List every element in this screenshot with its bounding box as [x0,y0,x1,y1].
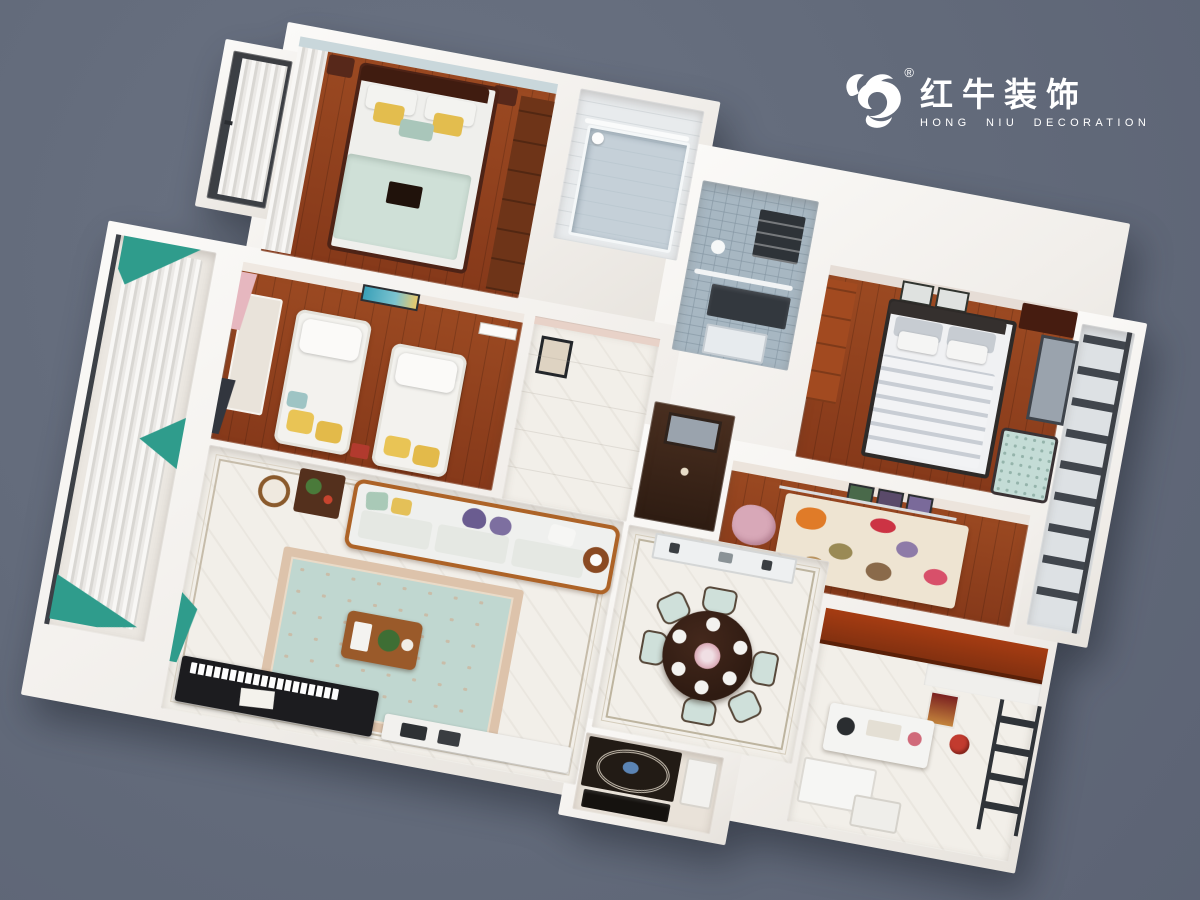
island-flowers [907,731,923,747]
foyer-bench [679,757,719,810]
room-master-bedroom [261,36,558,298]
brand-name-en: HONG NIU DECORATION [920,117,1150,129]
kids-bed-right-yellow-pillow [383,435,412,459]
side-table-cup [589,553,603,567]
piano-sheet [239,688,275,710]
study-window [663,412,722,453]
tv-device-2 [437,729,461,747]
rug-purple-shape [895,540,920,560]
kitchen-appliance-2 [849,794,902,834]
render-canvas: ® 红牛装饰 HONG NIU DECORATION [0,0,1200,900]
island-tray [866,719,902,741]
sofa-seat-1 [357,510,433,551]
bath-sink [710,239,726,255]
bedroom2-chaise-teal [990,427,1059,504]
sideboard-item-1 [669,542,681,554]
living-console-table [293,468,346,520]
sofa-pillow-purple-1 [461,506,488,530]
bedroom2-duvet-striped [866,354,996,469]
rug-pink-shape [922,567,949,587]
sideboard-item-2 [718,551,734,563]
kids-bed-left-pillow [298,318,363,362]
bull-logo-icon: ® [838,67,910,139]
rug-giraffe-shape [794,505,828,532]
bath-vanity [706,284,790,330]
brand-logo: ® 红牛装饰 HONG NIU DECORATION [838,60,1118,146]
bath-towel-bar [694,268,793,291]
kitchen-fruit-bowl [948,733,971,756]
island-kettle [835,716,856,737]
master-pillow-yellow-right [431,112,464,137]
kids-nightstand [350,443,370,460]
sofa-pillow-yellow [390,497,413,516]
dining-plate-4 [732,640,748,656]
coffee-table-plant [376,628,402,654]
bath-shelf-unit [752,209,806,265]
registered-mark: ® [904,65,914,80]
console-vase [323,494,333,504]
kids-bed-left-teal-pillow [286,390,309,409]
dining-centerpiece [692,641,722,671]
dining-plate-5 [670,661,686,677]
rug-red-shape [869,517,897,536]
master-cushion-mint [398,118,435,142]
dining-plate-6 [721,670,737,686]
coffee-table-teaset [400,638,414,652]
dining-plate-1 [705,616,721,632]
rug-brown-shape [864,560,893,582]
study-ceiling-lamp [680,467,689,476]
sofa-seat-3 [511,538,587,579]
dining-plate-3 [671,628,687,644]
kitchen-island [822,702,935,769]
kids-bed-left-yellow-pillow2 [314,420,343,444]
master-duvet [332,153,472,261]
tv-device-1 [400,722,428,741]
sideboard-item-3 [761,559,773,571]
kids-bed-left-yellow-pillow [285,409,315,435]
dining-plate-2 [693,679,709,695]
bay-window-mullion [224,120,233,125]
kids-bed-right-pillow [394,352,459,394]
coffee-table-tray [350,621,373,652]
shower-glass-box [568,124,691,253]
brand-name-cn: 红牛装饰 [920,77,1150,113]
sofa-pillow-mint [366,492,389,511]
kids-bed-right-yellow-pillow2 [411,444,440,468]
room-kitchen [787,608,1049,863]
room-dining [591,524,829,764]
rug-olive-shape [827,541,854,561]
console-plant [304,477,323,496]
